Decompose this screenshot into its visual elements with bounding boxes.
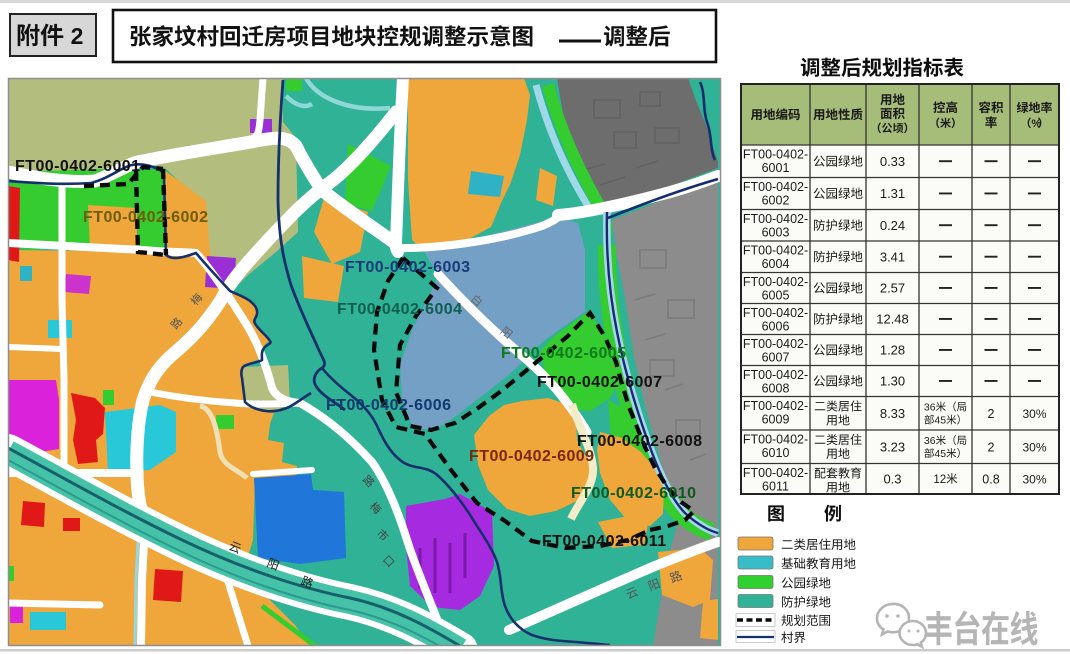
svg-text:FT00-0402-: FT00-0402- [743,399,808,413]
svg-text:FT00-0402-: FT00-0402- [743,466,808,480]
svg-text:FT00-0402-: FT00-0402- [743,212,808,226]
svg-text:6: 6 [930,435,936,447]
svg-text:2: 2 [988,407,995,421]
svg-text:2: 2 [71,23,84,49]
svg-text:3.41: 3.41 [880,249,905,264]
svg-text:FT00-0402-6011: FT00-0402-6011 [542,533,667,550]
svg-text:6: 6 [930,402,936,414]
svg-text:FT00-0402-6004: FT00-0402-6004 [337,301,463,318]
svg-text:30%: 30% [1022,472,1046,486]
svg-text:0.24: 0.24 [880,218,905,233]
svg-text:0.3: 0.3 [883,471,901,486]
svg-text:6007: 6007 [762,351,790,365]
svg-text:6009: 6009 [762,413,790,427]
svg-text:FT00-0402-6008: FT00-0402-6008 [577,433,703,450]
svg-text:2.57: 2.57 [880,281,905,296]
svg-text:FT00-0402-: FT00-0402- [743,337,808,351]
svg-text:1.28: 1.28 [880,343,905,358]
svg-text:6003: 6003 [762,226,790,240]
svg-text:FT00-0402-: FT00-0402- [743,244,808,258]
svg-text:FT00-0402-: FT00-0402- [743,433,808,447]
svg-text:6008: 6008 [762,382,790,396]
svg-text:6006: 6006 [762,320,790,334]
svg-text:3.23: 3.23 [880,439,905,454]
svg-text:6004: 6004 [762,257,790,271]
svg-text:8.33: 8.33 [880,406,905,421]
svg-text:FT00-0402-6003: FT00-0402-6003 [345,259,471,276]
svg-text:FT00-0402-: FT00-0402- [743,368,808,382]
svg-text:FT00-0402-: FT00-0402- [743,180,808,194]
svg-text:2: 2 [940,474,946,486]
svg-text:FT00-0402-: FT00-0402- [743,275,808,289]
svg-text:1.30: 1.30 [880,374,905,389]
svg-text:5: 5 [940,415,946,427]
svg-text:FT00-0402-6002: FT00-0402-6002 [83,209,209,226]
svg-text:FT00-0402-6001: FT00-0402-6001 [15,158,141,175]
svg-text:1.31: 1.31 [880,186,905,201]
svg-text:6011: 6011 [762,480,789,494]
svg-text:2: 2 [988,440,995,454]
svg-text:0.33: 0.33 [880,154,905,169]
svg-text:0.8: 0.8 [982,472,999,486]
svg-text:FT00-0402-6005: FT00-0402-6005 [501,345,627,362]
svg-text:FT00-0402-6007: FT00-0402-6007 [537,374,663,391]
svg-text:30%: 30% [1022,407,1046,421]
svg-text:30%: 30% [1022,440,1046,454]
svg-text:6010: 6010 [762,446,790,460]
svg-text:6001: 6001 [762,161,790,175]
svg-text:FT00-0402-6009: FT00-0402-6009 [469,448,595,465]
svg-text:6002: 6002 [762,194,790,208]
svg-text:12.48: 12.48 [876,312,909,327]
svg-text:FT00-0402-6006: FT00-0402-6006 [326,397,452,414]
svg-text:6005: 6005 [762,289,790,303]
svg-text:5: 5 [940,448,946,460]
svg-text:FT00-0402-6010: FT00-0402-6010 [571,485,697,502]
svg-text:FT00-0402-: FT00-0402- [743,148,808,162]
svg-text:FT00-0402-: FT00-0402- [743,306,808,320]
